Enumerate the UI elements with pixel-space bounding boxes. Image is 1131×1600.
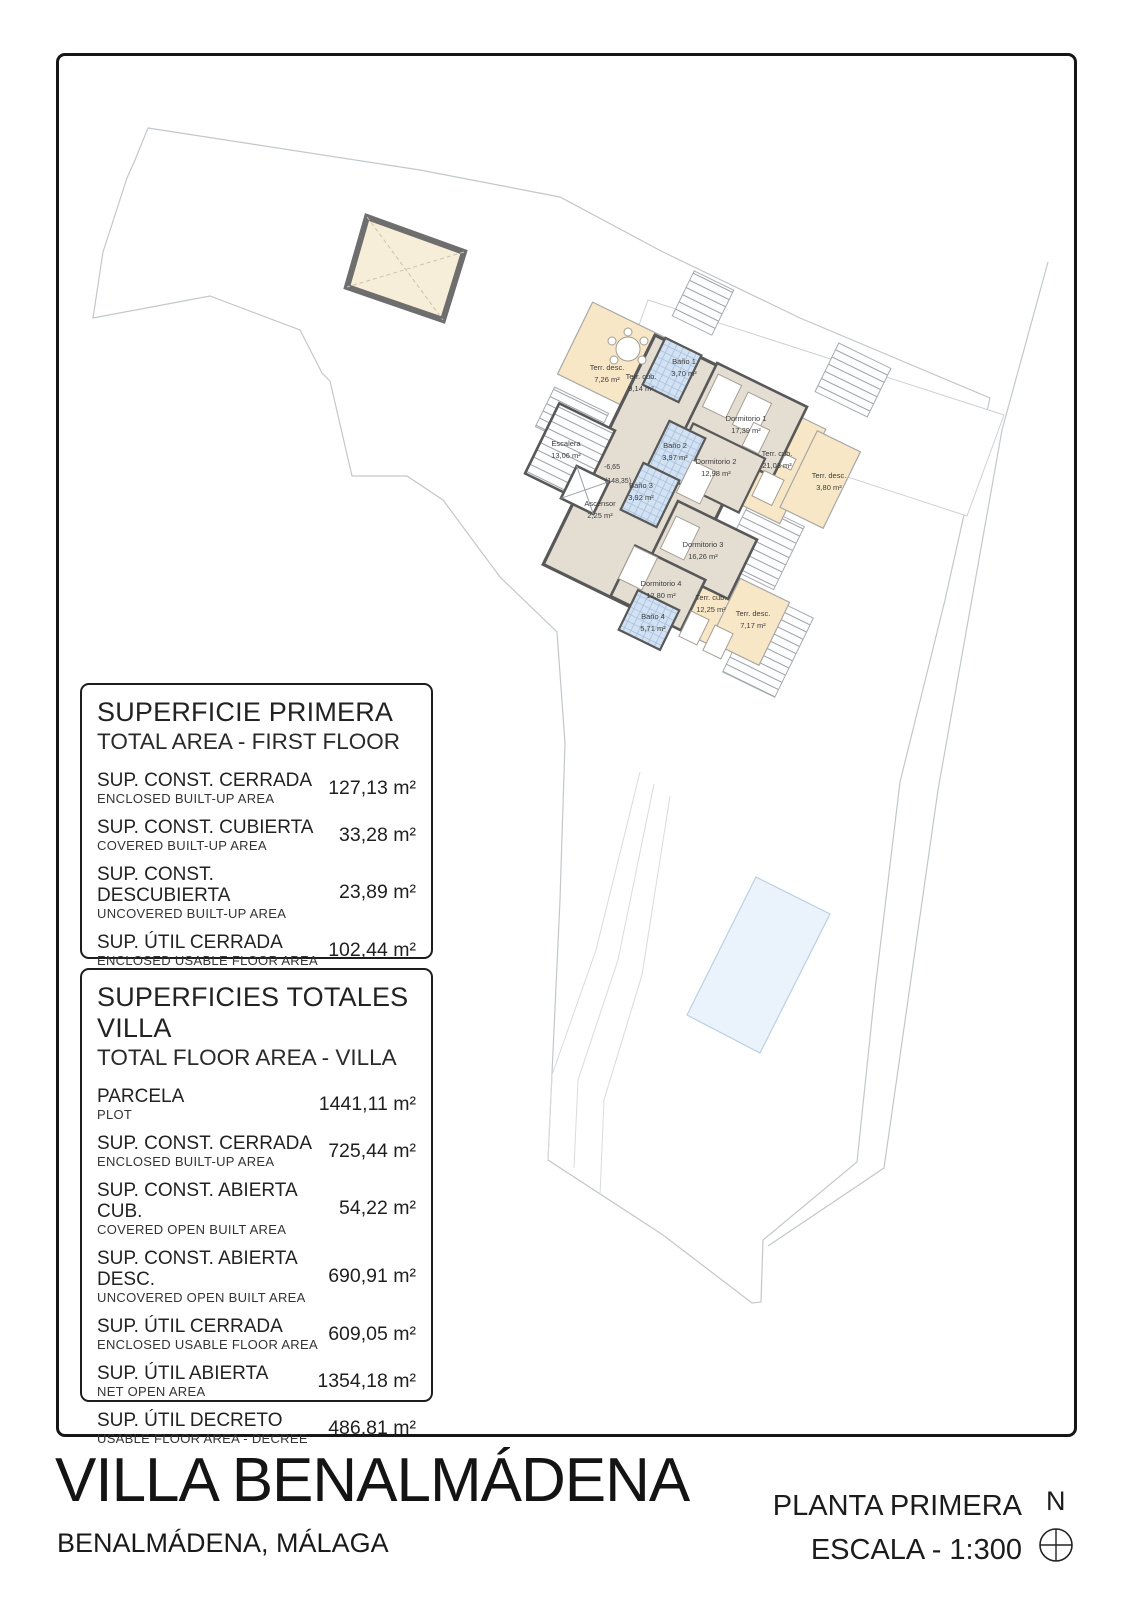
sheet-info: PLANTA PRIMERA ESCALA - 1:300 — [773, 1490, 1022, 1567]
table-row: SUP. CONST. CERRADA ENCLOSED BUILT-UP AR… — [97, 770, 416, 806]
row-label: SUP. ÚTIL CERRADA — [97, 1316, 318, 1337]
sheet-scale: ESCALA - 1:300 — [773, 1534, 1022, 1567]
room-label: Terr. desc. — [590, 363, 625, 372]
room-label: Ascensor — [584, 499, 616, 508]
row-label: SUP. CONST. CERRADA — [97, 1133, 312, 1154]
room-area: 3,97 m² — [662, 453, 688, 462]
row-value: 690,91 m² — [320, 1265, 416, 1288]
level-mark: -6,65 — [604, 464, 620, 471]
chair — [640, 337, 648, 345]
row-label: SUP. CONST. CUBIERTA — [97, 817, 313, 838]
room-area: 16,26 m² — [688, 552, 718, 561]
table-row: SUP. ÚTIL CERRADA ENCLOSED USABLE FLOOR … — [97, 1316, 416, 1352]
row-label: PARCELA — [97, 1086, 184, 1107]
room-label: Terr. cub. — [762, 449, 793, 458]
room-area: 5,71 m² — [640, 624, 666, 633]
table-title: SUPERFICIES TOTALES VILLA — [97, 982, 416, 1044]
north-compass-icon — [1036, 1524, 1076, 1564]
row-label: SUP. CONST. ABIERTA DESC. — [97, 1248, 320, 1290]
terrain-contours — [548, 772, 670, 1195]
room-area: 12,98 m² — [701, 469, 731, 478]
row-value: 1354,18 m² — [309, 1370, 416, 1393]
room-area: 12,80 m² — [646, 591, 676, 600]
skylight — [347, 217, 464, 320]
room-area: 3,70 m² — [671, 369, 697, 378]
room-label: Baño 3 — [629, 481, 653, 490]
row-sublabel: PLOT — [97, 1107, 184, 1122]
area-table-first-floor: SUPERFICIE PRIMERA TOTAL AREA - FIRST FL… — [80, 683, 433, 959]
row-label: SUP. CONST. DESCUBIERTA — [97, 864, 331, 906]
row-label: SUP. ÚTIL CERRADA — [97, 932, 318, 953]
row-value: 1441,11 m² — [311, 1093, 416, 1116]
row-sublabel: NET OPEN AREA — [97, 1384, 268, 1399]
row-value: 127,13 m² — [320, 777, 416, 800]
table-row: SUP. CONST. CUBIERTA COVERED BUILT-UP AR… — [97, 817, 416, 853]
row-sublabel: UNCOVERED BUILT-UP AREA — [97, 906, 331, 921]
row-sublabel: ENCLOSED USABLE FLOOR AREA — [97, 1337, 318, 1352]
room-area: 13,06 m² — [551, 451, 581, 460]
room-area: 2,25 m² — [587, 511, 613, 520]
row-label: SUP. CONST. ABIERTA CUB. — [97, 1180, 331, 1222]
table-row: SUP. ÚTIL CERRADA ENCLOSED USABLE FLOOR … — [97, 932, 416, 968]
room-label: Dormitorio 1 — [726, 414, 767, 423]
table-row: SUP. ÚTIL ABIERTA NET OPEN AREA 1354,18 … — [97, 1363, 416, 1399]
table-title: SUPERFICIE PRIMERA — [97, 697, 416, 728]
room-label: Dormitorio 2 — [696, 457, 737, 466]
table-subtitle: TOTAL AREA - FIRST FLOOR — [97, 728, 416, 755]
room-label: Terr. cub. — [626, 372, 657, 381]
table-row: SUP. ÚTIL DECRETO USABLE FLOOR AREA - DE… — [97, 1410, 416, 1446]
row-value: 609,05 m² — [320, 1323, 416, 1346]
table-row: PARCELA PLOT 1441,11 m² — [97, 1086, 416, 1122]
row-sublabel: USABLE FLOOR AREA - DECREE — [97, 1431, 308, 1446]
row-sublabel: ENCLOSED USABLE FLOOR AREA — [97, 953, 318, 968]
row-label: SUP. CONST. CERRADA — [97, 770, 312, 791]
room-area: 3,80 m² — [816, 483, 842, 492]
chair — [638, 356, 646, 364]
row-value: 33,28 m² — [331, 824, 416, 847]
room-label: Terr. desc. — [812, 471, 847, 480]
room-area: 17,39 m² — [731, 426, 761, 435]
row-sublabel: ENCLOSED BUILT-UP AREA — [97, 1154, 312, 1169]
room-label: Terr. cub. — [696, 593, 727, 602]
room-label: Baño 1 — [672, 357, 696, 366]
table-row: SUP. CONST. CERRADA ENCLOSED BUILT-UP AR… — [97, 1133, 416, 1169]
table-row: SUP. CONST. DESCUBIERTA UNCOVERED BUILT-… — [97, 864, 416, 921]
row-value: 725,44 m² — [320, 1140, 416, 1163]
room-label: Escalera — [551, 439, 581, 448]
row-label: SUP. ÚTIL ABIERTA — [97, 1363, 268, 1384]
room-label: Dormitorio 4 — [641, 579, 682, 588]
row-value: 486,81 m² — [320, 1417, 416, 1440]
project-title: VILLA BENALMÁDENA — [55, 1448, 689, 1514]
table-subtitle: TOTAL FLOOR AREA - VILLA — [97, 1044, 416, 1071]
room-label: Terr. desc. — [736, 609, 771, 618]
room-area: 7,26 m² — [594, 375, 620, 384]
pool — [687, 877, 830, 1053]
row-sublabel: UNCOVERED OPEN BUILT AREA — [97, 1290, 320, 1305]
project-location: BENALMÁDENA, MÁLAGA — [57, 1528, 389, 1559]
chair — [608, 337, 616, 345]
area-table-villa-totals: SUPERFICIES TOTALES VILLA TOTAL FLOOR AR… — [80, 968, 433, 1402]
table-row: SUP. CONST. ABIERTA DESC. UNCOVERED OPEN… — [97, 1248, 416, 1305]
level-datum: (148,35) — [605, 478, 631, 485]
room-area: 7,17 m² — [740, 621, 766, 630]
chair — [624, 328, 632, 336]
sheet-name: PLANTA PRIMERA — [773, 1490, 1022, 1523]
row-sublabel: ENCLOSED BUILT-UP AREA — [97, 791, 312, 806]
round-table — [616, 337, 640, 361]
row-value: 102,44 m² — [320, 939, 416, 962]
row-sublabel: COVERED OPEN BUILT AREA — [97, 1222, 331, 1237]
north-label: N — [1046, 1486, 1066, 1517]
room-area: 3,92 m² — [628, 493, 654, 502]
room-area: 12,25 m² — [696, 605, 726, 614]
room-area: 21,03 m² — [762, 461, 792, 470]
room-area: 9,14 m² — [628, 384, 654, 393]
room-label: Baño 4 — [641, 612, 665, 621]
row-value: 23,89 m² — [331, 881, 416, 904]
table-row: SUP. CONST. ABIERTA CUB. COVERED OPEN BU… — [97, 1180, 416, 1237]
room-label: Dormitorio 3 — [683, 540, 724, 549]
row-label: SUP. ÚTIL DECRETO — [97, 1410, 308, 1431]
drawing-sheet: Terr. desc. 7,26 m² Terr. cub. 9,14 m² B… — [0, 0, 1131, 1600]
row-value: 54,22 m² — [331, 1197, 416, 1220]
row-sublabel: COVERED BUILT-UP AREA — [97, 838, 313, 853]
room-label: Baño 2 — [663, 441, 687, 450]
